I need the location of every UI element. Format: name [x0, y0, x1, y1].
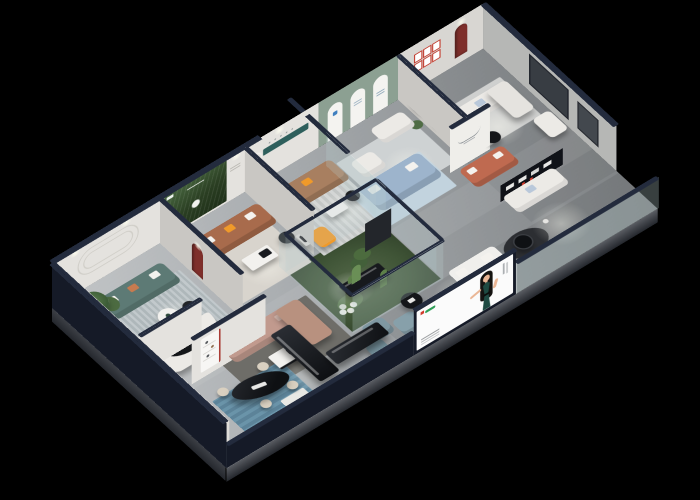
arch-text-bars: [354, 98, 362, 104]
sofa-pillow: [148, 270, 161, 279]
model-arm-hip: [493, 278, 499, 289]
billboard-logo-green-script: [425, 305, 435, 314]
sofa-pillow-orange: [300, 177, 313, 186]
wall-dots-row: [269, 141, 271, 143]
table-black-tray: [258, 248, 273, 259]
arch-text-bars: [377, 88, 385, 94]
table-white-runner: [251, 381, 268, 390]
sofa-pillow: [466, 166, 478, 175]
red-arch-niche: [192, 240, 203, 279]
billboard-logo-red-icon: [421, 310, 424, 315]
sofa-pillow-blue: [524, 184, 537, 193]
sofa-pillow: [404, 161, 419, 172]
billboard-vertical-text-bars: [503, 263, 505, 275]
model-hair: [480, 268, 492, 303]
sofa-pillow: [244, 211, 257, 220]
sofa-pillow-orange: [223, 224, 236, 233]
arch-logo-mark: [333, 110, 338, 117]
billboard-caption-bars: [421, 328, 439, 340]
render-canvas: [0, 0, 700, 500]
wall-text-bars: [230, 162, 240, 169]
sofa-pillow-rust: [127, 283, 140, 292]
table-book-dot: [407, 297, 416, 303]
brand-script-logo: [458, 125, 481, 145]
sofa-pillow: [492, 151, 504, 160]
cactus-arm: [348, 275, 352, 285]
